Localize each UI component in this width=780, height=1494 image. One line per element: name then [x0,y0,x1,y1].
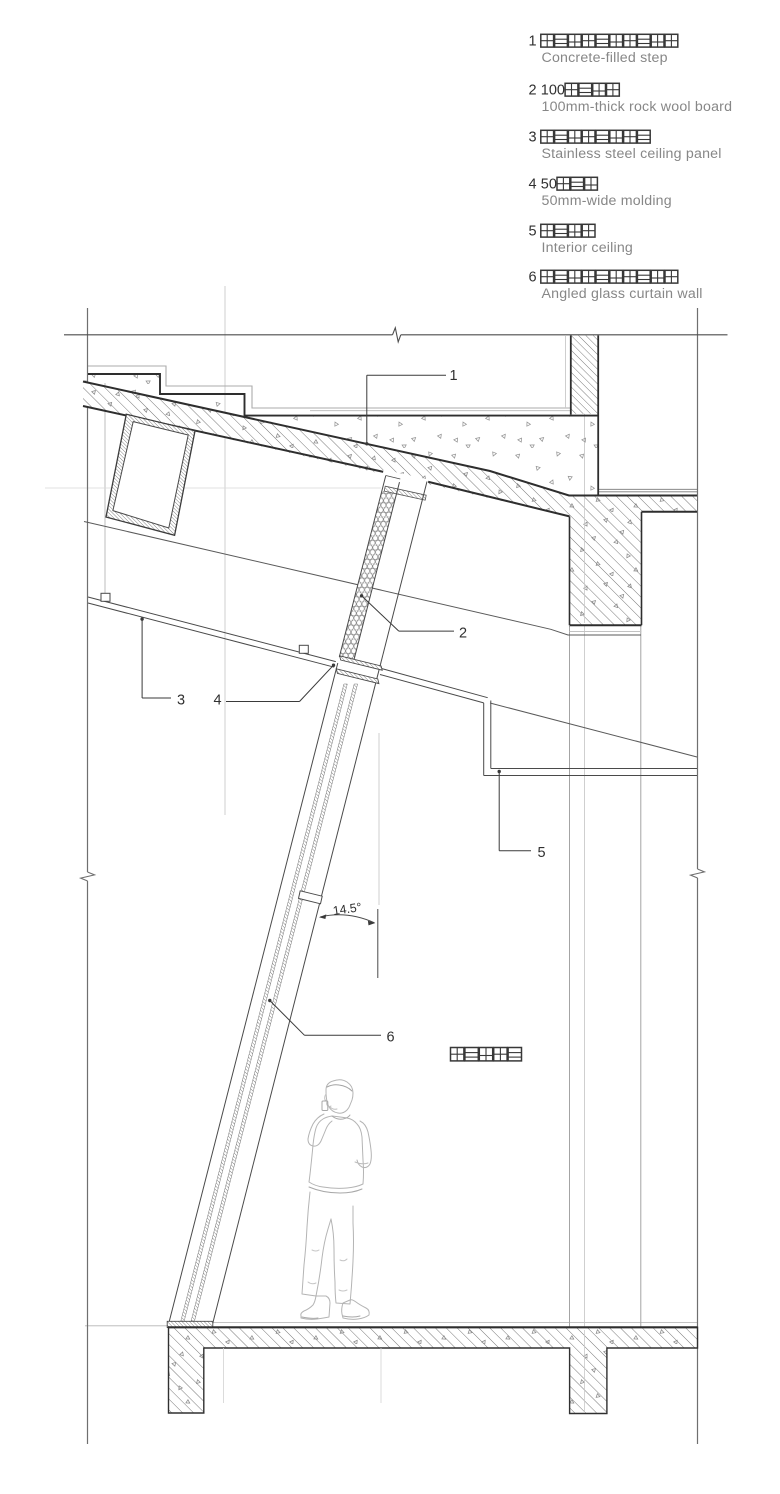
svg-text:2: 2 [529,83,537,99]
svg-text:6: 6 [387,1030,395,1046]
svg-text:Angled glass curtain wall: Angled glass curtain wall [542,286,703,302]
svg-text:6: 6 [529,270,537,286]
svg-text:Concrete-filled step: Concrete-filled step [542,50,668,66]
svg-text:2: 2 [459,626,467,642]
svg-text:4: 4 [529,177,537,193]
svg-text:Stainless steel ceiling panel: Stainless steel ceiling panel [542,146,722,162]
svg-text:100: 100 [541,83,565,99]
svg-text:5: 5 [538,845,546,861]
svg-text:50: 50 [541,177,557,193]
svg-text:3: 3 [529,130,537,146]
svg-text:100mm-thick rock wool board: 100mm-thick rock wool board [542,99,733,115]
svg-text:1: 1 [529,34,537,50]
svg-text:50mm-wide molding: 50mm-wide molding [542,193,672,209]
svg-text:4: 4 [214,693,222,709]
svg-text:Interior ceiling: Interior ceiling [542,240,634,256]
svg-text:1: 1 [450,368,458,384]
svg-text:3: 3 [177,693,185,709]
svg-text:5: 5 [529,224,537,240]
